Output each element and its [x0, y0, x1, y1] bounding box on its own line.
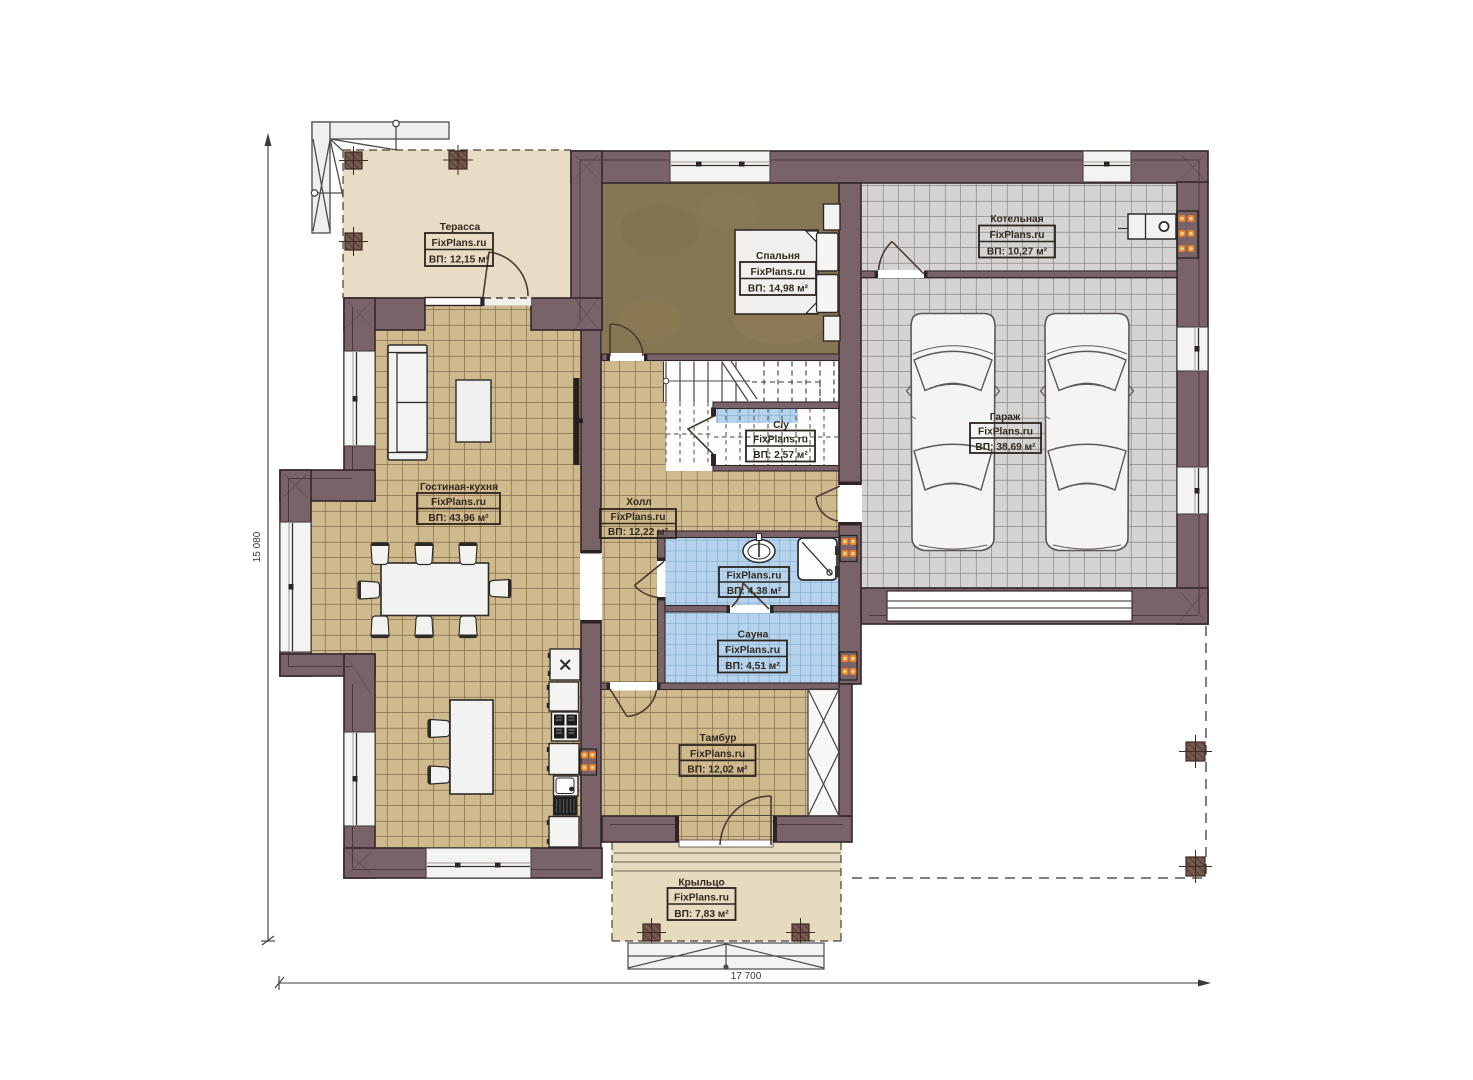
svg-text:Холл: Холл [626, 497, 652, 508]
svg-text:FixPlans.ru: FixPlans.ru [431, 497, 486, 508]
svg-text:Терасса: Терасса [440, 222, 481, 233]
svg-text:FixPlans.ru: FixPlans.ru [611, 512, 666, 523]
svg-text:FixPlans.ru: FixPlans.ru [990, 230, 1045, 241]
svg-text:FixPlans.ru: FixPlans.ru [725, 645, 780, 656]
svg-text:ВП: 12,02 м²: ВП: 12,02 м² [687, 765, 748, 776]
svg-text:Тамбур: Тамбур [700, 732, 737, 744]
svg-text:Гостиная-кухня: Гостиная-кухня [420, 482, 498, 493]
svg-text:ВП: 2,57 м²: ВП: 2,57 м² [753, 450, 808, 461]
svg-text:FixPlans.ru: FixPlans.ru [432, 238, 487, 249]
svg-text:С/у: С/у [773, 420, 789, 431]
svg-text:FixPlans.ru: FixPlans.ru [727, 571, 782, 582]
svg-text:FixPlans.ru: FixPlans.ru [690, 749, 745, 760]
svg-text:Сауна: Сауна [738, 630, 769, 641]
svg-text:ВП: 7,83 м²: ВП: 7,83 м² [674, 909, 729, 920]
svg-text:ВП: 10,27 м²: ВП: 10,27 м² [987, 247, 1048, 258]
svg-text:Крыльцо: Крыльцо [678, 878, 724, 889]
svg-text:15 080: 15 080 [252, 531, 263, 562]
svg-text:ВП: 4,51 м²: ВП: 4,51 м² [725, 661, 780, 672]
svg-text:FixPlans.ru: FixPlans.ru [674, 893, 729, 904]
svg-text:ВП: 12,22 м²: ВП: 12,22 м² [608, 527, 669, 538]
svg-text:ВП: 12,15 м²: ВП: 12,15 м² [429, 255, 490, 266]
svg-text:ВП: 14,98 м²: ВП: 14,98 м² [748, 284, 809, 295]
svg-text:FixPlans.ru: FixPlans.ru [753, 435, 808, 446]
svg-text:ВП: 43,96 м²: ВП: 43,96 м² [428, 513, 489, 524]
svg-text:ВП: 4,38 м²: ВП: 4,38 м² [727, 586, 782, 597]
svg-text:Спальня: Спальня [756, 251, 800, 262]
svg-text:ВП: 38,69 м²: ВП: 38,69 м² [975, 442, 1036, 453]
svg-text:FixPlans.ru: FixPlans.ru [978, 427, 1033, 438]
svg-text:Гараж: Гараж [990, 412, 1021, 423]
svg-text:Котельная: Котельная [990, 214, 1043, 225]
svg-text:FixPlans.ru: FixPlans.ru [751, 267, 806, 278]
svg-text:17 700: 17 700 [731, 971, 762, 982]
